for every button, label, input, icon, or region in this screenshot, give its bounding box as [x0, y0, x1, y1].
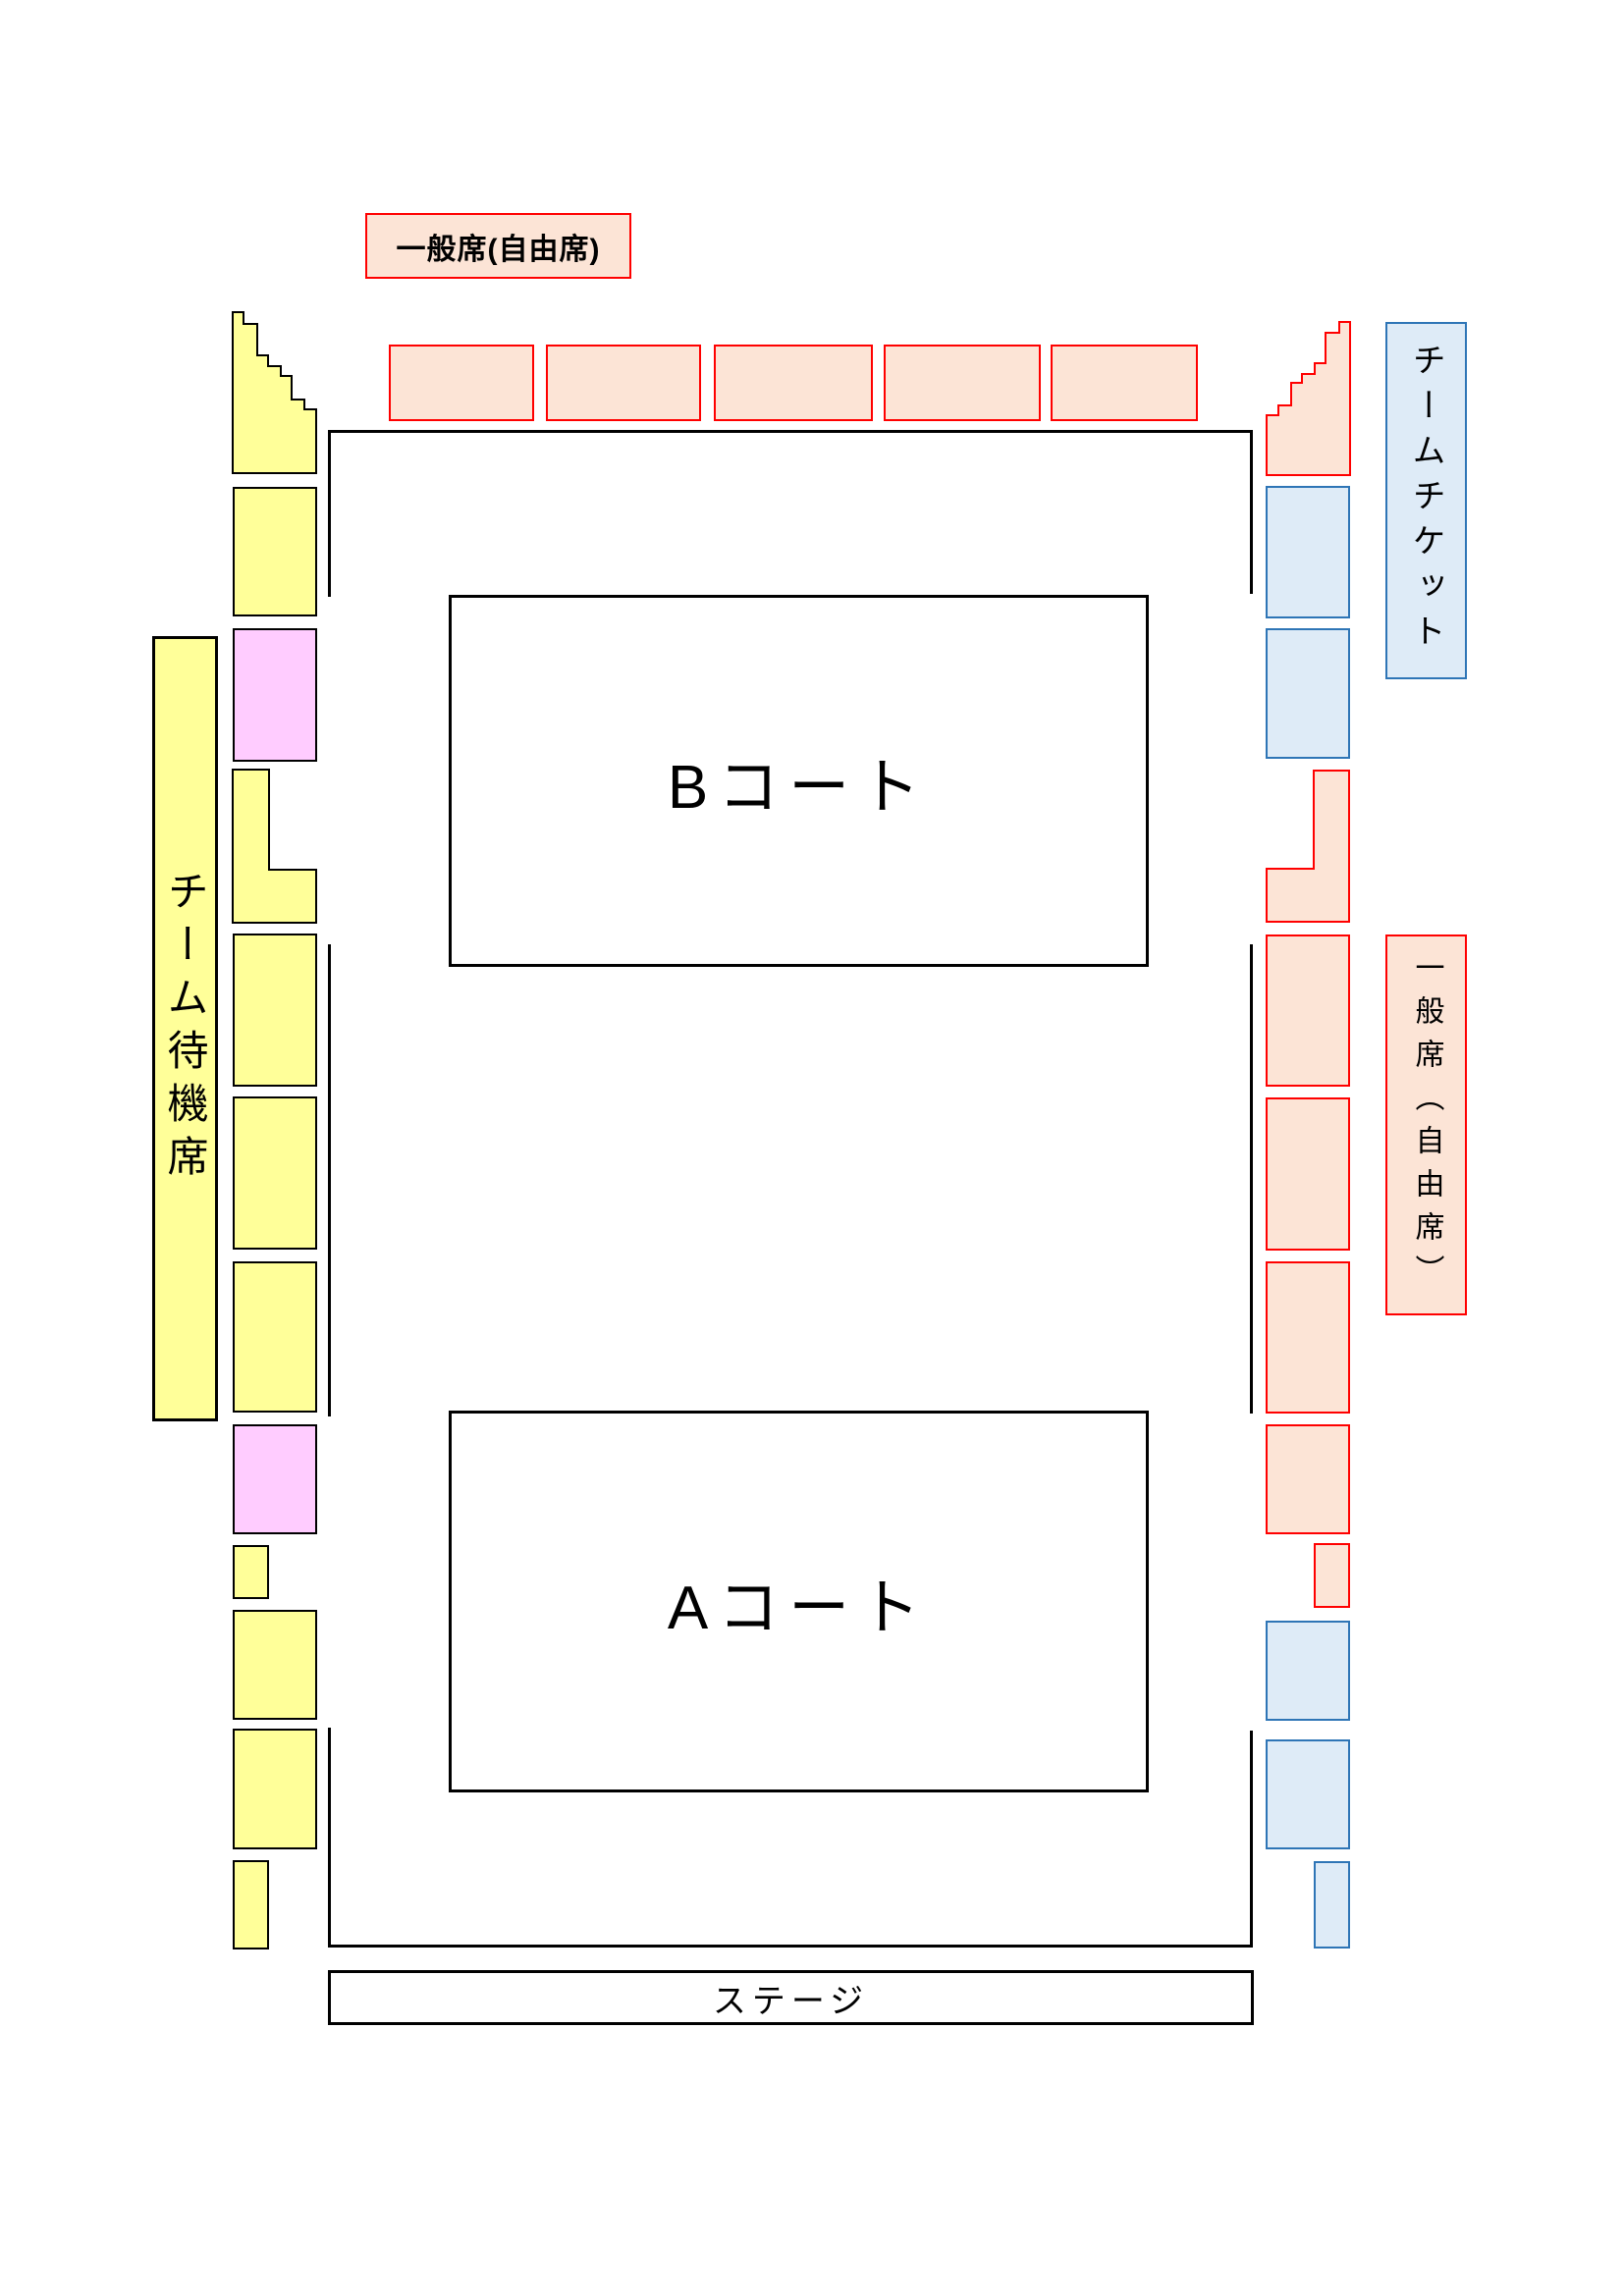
- legend-general-seats-right-label: 一般席（自由席）: [1405, 952, 1448, 1298]
- legend-team-waiting: チーム待機席: [152, 636, 218, 1421]
- arena-wall-top: [328, 430, 1253, 433]
- arena-wall-right-upper: [1250, 430, 1253, 594]
- seat-block-left-11: [233, 1729, 317, 1849]
- seat-block-left-8: [233, 1424, 317, 1534]
- seat-block-right-8: [1266, 1424, 1350, 1534]
- seat-block-left-9: [233, 1545, 269, 1599]
- legend-general-seats-top: 一般席(自由席): [365, 213, 631, 279]
- seat-block-left-10: [233, 1610, 317, 1720]
- seat-block-right-3: [1266, 628, 1350, 759]
- legend-team-waiting-label: チーム待機席: [155, 870, 215, 1188]
- legend-general-seats-right: 一般席（自由席）: [1385, 934, 1467, 1315]
- seat-block-right-10: [1266, 1621, 1350, 1721]
- court-b: Bコート: [449, 595, 1149, 967]
- seat-block-top-4: [884, 345, 1041, 421]
- seat-block-left-5: [233, 934, 317, 1087]
- seat-block-right-11: [1266, 1739, 1350, 1849]
- legend-general-seats-top-label: 一般席(自由席): [397, 225, 601, 268]
- seat-block-right-7: [1266, 1261, 1350, 1414]
- seat-block-left-3: [233, 628, 317, 762]
- arena-wall-left-middle: [328, 944, 331, 1416]
- seat-block-top-2: [546, 345, 701, 421]
- seat-block-right-6: [1266, 1097, 1350, 1251]
- arena-wall-right-middle: [1250, 944, 1253, 1414]
- stage-label: ステージ: [713, 1974, 869, 2022]
- seat-block-left-7: [233, 1261, 317, 1413]
- court-a: Aコート: [449, 1411, 1149, 1792]
- legend-team-ticket: チームチケット: [1385, 322, 1467, 679]
- seat-block-top-1: [389, 345, 534, 421]
- seat-block-right-2: [1266, 486, 1350, 618]
- seat-block-right-9: [1314, 1543, 1350, 1608]
- seat-block-top-3: [714, 345, 873, 421]
- seat-block-top-5: [1051, 345, 1198, 421]
- arena-wall-right-lower: [1250, 1731, 1253, 1945]
- seat-block-left-12: [233, 1860, 269, 1949]
- court-a-label: Aコート: [668, 1558, 930, 1646]
- seat-block-left-6: [233, 1096, 317, 1250]
- seat-block-left-2: [233, 487, 317, 616]
- stepped-seat-left: [232, 311, 318, 475]
- stage: ステージ: [328, 1970, 1254, 2025]
- stepped-seat-right: [1265, 321, 1351, 477]
- l-shaped-seat-left: [232, 769, 318, 925]
- arena-wall-left-upper: [328, 430, 331, 597]
- seat-block-right-5: [1266, 934, 1350, 1087]
- arena-wall-left-lower: [328, 1728, 331, 1945]
- arena-wall-bottom: [328, 1945, 1253, 1948]
- seating-diagram: Bコート Aコート ステージ 一般席(自由席) チームチケット 一般席（自由席）…: [0, 0, 1624, 2296]
- court-b-label: Bコート: [668, 737, 930, 826]
- legend-team-ticket-label: チームチケット: [1402, 343, 1450, 659]
- l-shaped-seat-right: [1265, 770, 1351, 924]
- seat-block-right-12: [1314, 1861, 1350, 1949]
